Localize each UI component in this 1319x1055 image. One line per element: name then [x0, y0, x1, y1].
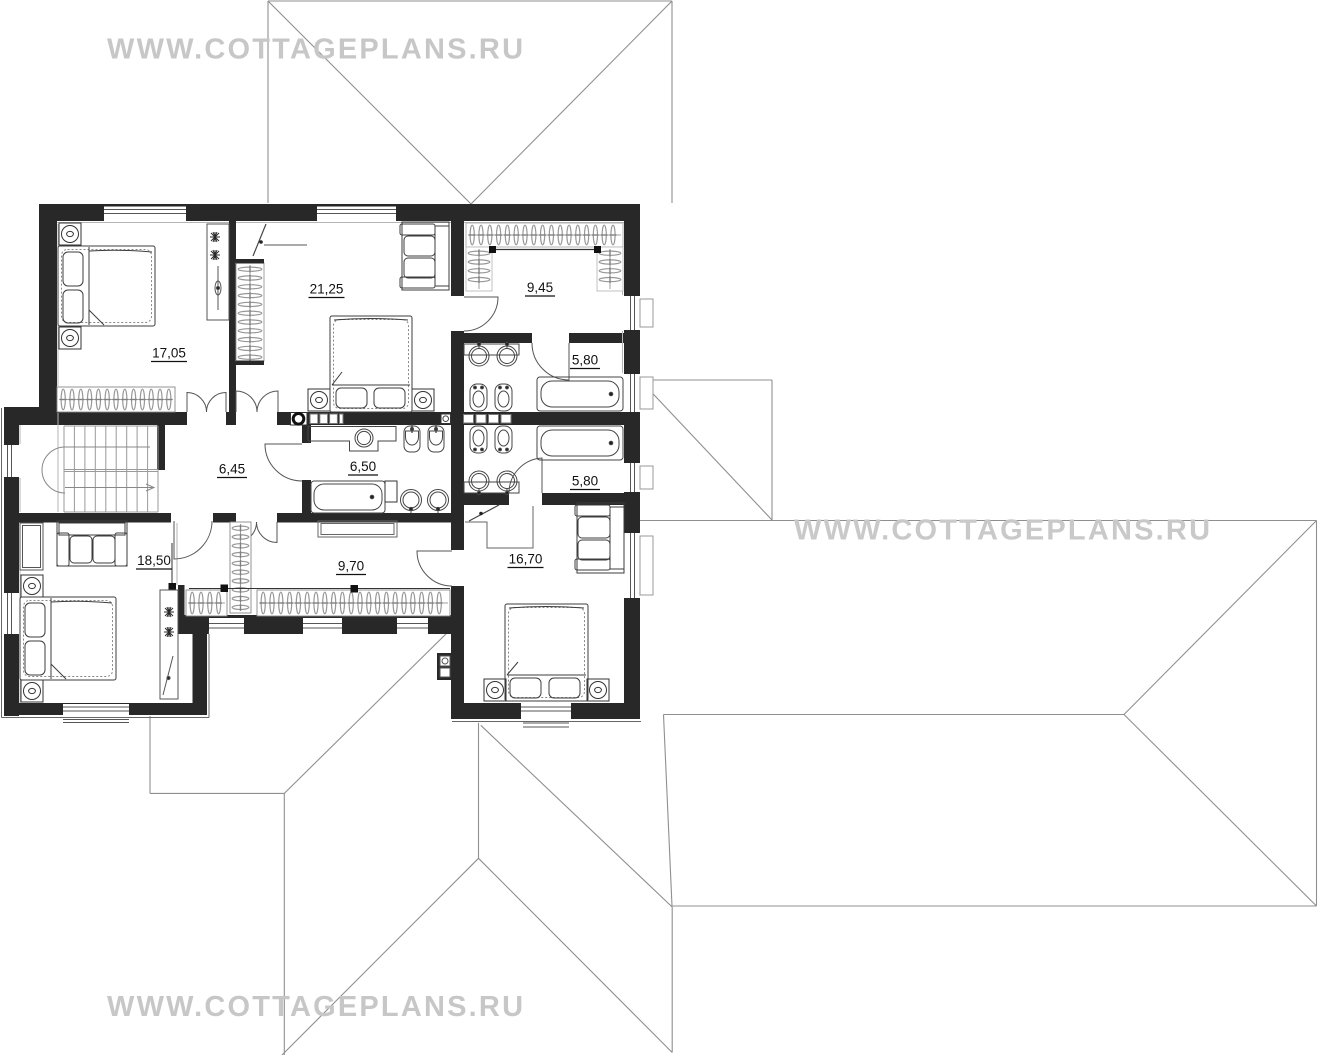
svg-text:9,45: 9,45 [527, 280, 553, 295]
svg-text:17,05: 17,05 [152, 346, 186, 361]
svg-text:WWW.COTTAGEPLANS.RU: WWW.COTTAGEPLANS.RU [107, 34, 525, 66]
svg-text:5,80: 5,80 [572, 474, 598, 489]
svg-text:16,70: 16,70 [509, 552, 543, 567]
svg-text:9,70: 9,70 [338, 559, 364, 574]
svg-text:WWW.COTTAGEPLANS.RU: WWW.COTTAGEPLANS.RU [794, 515, 1212, 547]
svg-text:21,25: 21,25 [310, 282, 344, 297]
svg-text:18,50: 18,50 [137, 553, 171, 568]
svg-text:6,45: 6,45 [219, 462, 245, 477]
svg-text:6,50: 6,50 [350, 459, 376, 474]
svg-text:WWW.COTTAGEPLANS.RU: WWW.COTTAGEPLANS.RU [107, 991, 525, 1023]
svg-text:5,80: 5,80 [572, 353, 598, 368]
